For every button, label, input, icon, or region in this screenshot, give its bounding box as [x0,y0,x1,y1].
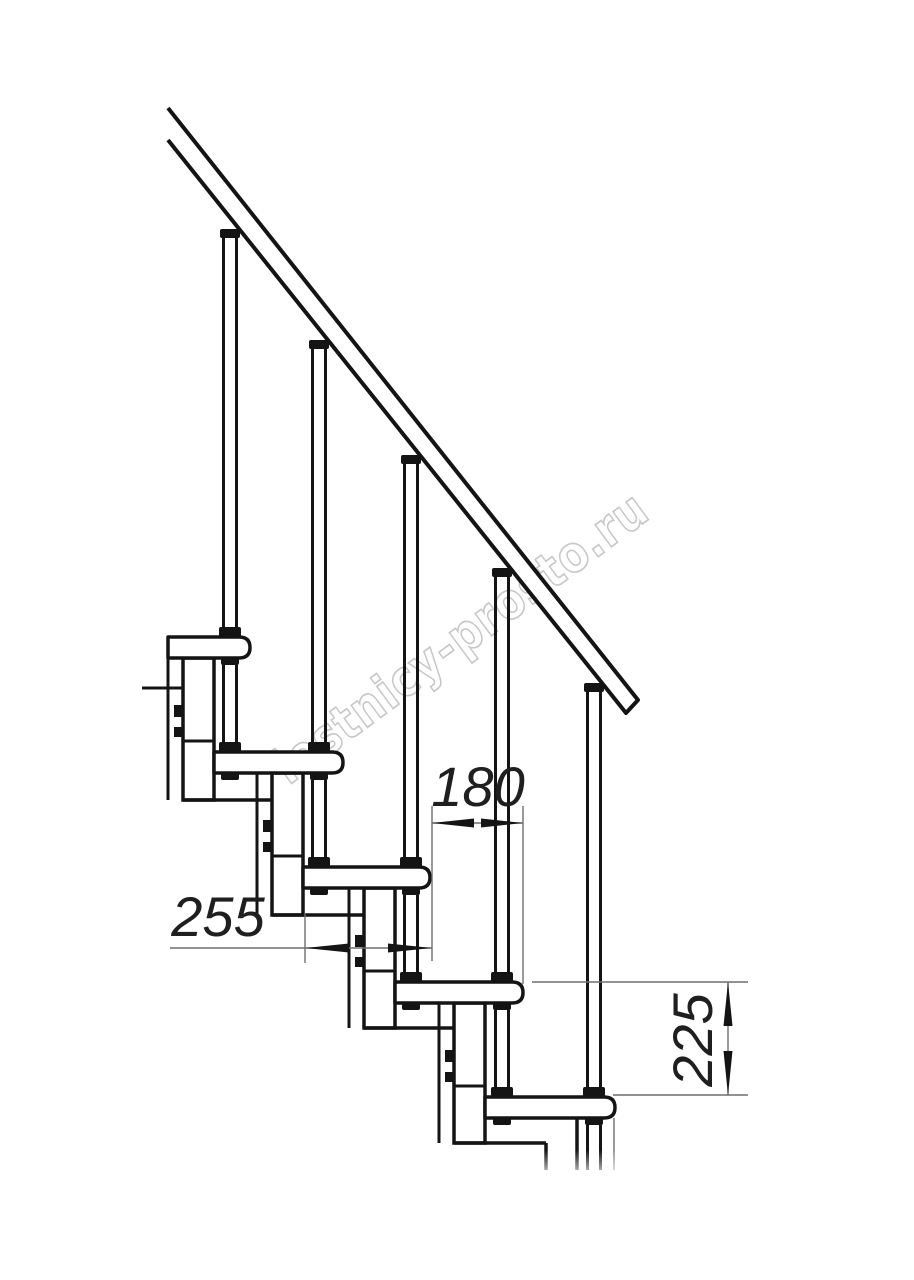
baluster-nut [493,1003,511,1010]
bolt-tab [174,705,184,717]
drawing-page: lestnicy-prosto.ru [0,0,914,1280]
baluster-2 [313,347,326,744]
baluster-3-lower [405,895,418,974]
dimension-label-riser-height: 225 [661,992,724,1087]
baluster-nut [402,888,420,895]
tread-2 [214,752,343,773]
baluster-rail-connector [401,455,421,464]
dimension-label-tread-depth: 255 [170,885,265,948]
support-assembly-4 [439,1003,546,1143]
bolt-tab [355,935,365,947]
bolt-tab [445,1050,455,1062]
baluster-1 [224,236,237,629]
dimension-riser-height: 225 [532,982,748,1095]
baluster-rail-connector [584,683,604,692]
baluster-nut [493,1118,511,1125]
arrowhead-left [305,944,349,953]
tread-1 [168,637,250,658]
tread-4 [395,982,523,1003]
bolt-tab [355,957,365,967]
arrowhead-up [724,982,733,1026]
baluster-nut [585,1118,603,1125]
bolt-tab [174,727,184,737]
baluster-collar [491,1087,513,1097]
baluster-nut [402,1003,420,1010]
baluster-collar [400,972,422,982]
bolt-tab [263,842,273,852]
baluster-collar [308,857,330,867]
baluster-collar [219,742,241,752]
arrowhead-down [724,1051,733,1095]
stair-technical-drawing: lestnicy-prosto.ru [0,0,914,1280]
bolt-tab [263,820,273,832]
baluster-2-lower [313,780,326,859]
baluster-rail-connector [492,568,512,577]
arrowhead-left [432,819,474,828]
baluster-nut [310,888,328,895]
baluster-rail-connector [309,340,329,349]
baluster-nut [221,658,239,665]
baluster-rail-connector [220,229,240,238]
dimension-step-offset: 180 [431,755,524,984]
baluster-5 [588,690,601,1089]
bolt-tab [445,1072,455,1082]
baluster-nut [221,773,239,780]
bottom-fade [430,1150,660,1182]
arrowhead-right [388,944,432,953]
baluster-nut [310,773,328,780]
tread-5 [485,1097,615,1118]
baluster-1-lower [224,665,237,744]
dimension-label-step-offset: 180 [431,755,524,818]
baluster-4-lower [496,1010,509,1089]
tread-3 [303,867,430,888]
arrowhead-right [481,819,523,828]
